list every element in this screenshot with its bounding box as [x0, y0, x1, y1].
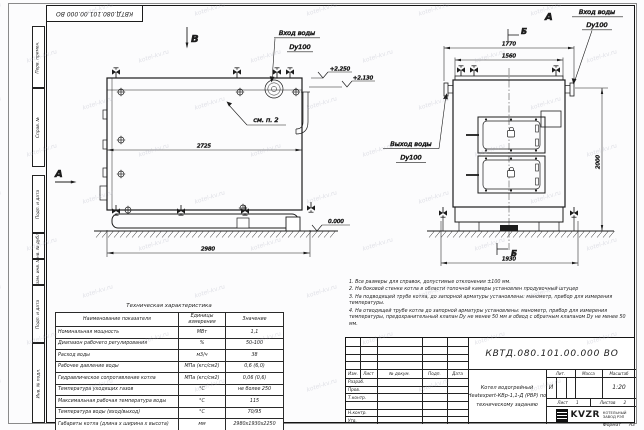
kvzr-logo-text: KVZR	[571, 410, 600, 420]
param-name: Диапазон рабочего регулирования	[56, 338, 179, 350]
table-row: Температура уходящих газов°Сне более 250	[56, 384, 284, 396]
name-line: Котел водогрейный	[481, 384, 534, 393]
table-row: Рабочее давление водыМПа (кгс/см2)0,6 (6…	[56, 361, 284, 373]
name-line: техническому заданию	[476, 401, 538, 410]
title-block: Изм. Лист № докум. Подп. Дата Разраб. Пр…	[345, 337, 635, 423]
upper-door	[466, 117, 545, 153]
param-unit: °С	[179, 407, 226, 419]
format-note: Формат А3	[575, 423, 635, 428]
elev-top-label: +2.250	[330, 67, 351, 73]
table-row: Максимальная рабочая температура воды°С1…	[56, 396, 284, 408]
param-unit: м3/ч	[179, 350, 226, 362]
inlet-right-dy: Dy100	[586, 21, 607, 29]
control-box	[541, 111, 561, 127]
mass-label: Масса	[575, 369, 602, 377]
row-razrab: Разраб.	[346, 378, 379, 386]
dim-2000: 2000	[596, 155, 602, 169]
document-name: Котел водогрейный Heatexpert-КВр-1,1-Д (…	[468, 369, 546, 424]
note-2: 2. На боковой стенке котла в области топ…	[349, 287, 631, 293]
sheets-cell: Листов 2	[590, 398, 636, 406]
lit-label: Лит.	[546, 369, 575, 377]
see-note-label: см. п. 2	[253, 116, 278, 124]
tech-table: Наименование показателя Единицы измерени…	[55, 312, 284, 430]
note-3: 3. На подводящей трубе котла, до запорно…	[349, 295, 631, 308]
row-tkontr: Т.контр.	[346, 393, 379, 401]
sheet-value: 1	[576, 400, 579, 405]
name-line: Heatexpert-КВр-1,1-Д (РВР) по	[468, 392, 546, 401]
lower-door	[466, 156, 545, 193]
section-b-bottom-label: Б	[511, 249, 517, 258]
col-ndoc: № докум.	[377, 369, 422, 378]
row-nkontr: Н.контр.	[346, 409, 379, 417]
param-value: 38	[226, 350, 284, 362]
inlet-left-dy: Dy100	[289, 43, 310, 51]
param-unit: °С	[179, 384, 226, 396]
elev-mid-label: +2.130	[353, 76, 374, 82]
view-a-label: А	[54, 169, 63, 180]
col-header: Наименование показателя	[56, 313, 179, 327]
table-header-row: Наименование показателя Единицы измерени…	[56, 313, 284, 327]
param-name: Номинальная мощность	[56, 327, 179, 339]
row-utv: Утв.	[346, 416, 379, 424]
param-unit: МПа (кгс/см2)	[179, 361, 226, 373]
grid-line	[566, 377, 567, 398]
note-1: 1. Все размеры для справок, допустимые о…	[349, 280, 631, 286]
param-unit: %	[179, 338, 226, 350]
caption-line: ЗАВОД РЭП	[603, 415, 627, 419]
grid-line	[422, 338, 423, 424]
row-prov: Пров.	[346, 386, 379, 394]
col-header: Единицы измерения	[179, 313, 226, 327]
param-unit: мм	[179, 419, 226, 430]
kvzr-caption: КОТЕЛЬНЫЙ ЗАВОД РЭП	[603, 411, 627, 420]
format-value: А3	[629, 423, 635, 428]
sheet-cell: Лист 1	[546, 398, 590, 406]
dim-1560: 1560	[502, 54, 516, 60]
inlet-left-label: Вход воды	[279, 29, 315, 37]
inlet-flange	[570, 83, 574, 96]
param-unit: °С	[179, 396, 226, 408]
param-value: 1,1	[226, 327, 284, 339]
note-4: 4. На отводящей трубе котла до запорной …	[349, 309, 631, 328]
company-logo: KVZR КОТЕЛЬНЫЙ ЗАВОД РЭП	[546, 406, 636, 424]
param-value: 50-100	[226, 338, 284, 350]
view-b-label: В	[191, 34, 199, 45]
param-value: не более 250	[226, 384, 284, 396]
format-label: Формат	[603, 423, 621, 428]
param-value: 70/95	[226, 407, 284, 419]
col-data: Дата	[447, 369, 468, 378]
dim-2980: 2980	[201, 247, 215, 253]
table-row: Температура воды (вход/выход)°С70/95	[56, 407, 284, 419]
grid-line	[346, 346, 468, 347]
param-name: Температура воды (вход/выход)	[56, 407, 179, 419]
drawing-sheet: КВТД.080.101.00.000 ВО Перв. примен. Спр…	[0, 0, 644, 430]
param-name: Гидравлическое сопротивление котла	[56, 373, 179, 385]
designation: КВТД.080.101.00.000 ВО	[468, 338, 636, 369]
inlet-right-label: Вход воды	[579, 8, 615, 16]
table-row: Расход водым3/ч38	[56, 350, 284, 362]
grid-line	[346, 361, 468, 362]
param-name: Максимальная рабочая температура воды	[56, 396, 179, 408]
param-name: Габариты котла (длина х ширина х высота)	[56, 419, 179, 430]
notes: 1. Все размеры для справок, допустимые о…	[349, 280, 631, 329]
param-value: 115	[226, 396, 284, 408]
scale-value: 1:20	[602, 377, 636, 398]
param-value: 0,06 (0,6)	[226, 373, 284, 385]
outlet-flange	[444, 83, 448, 96]
sheets-label: Листов	[600, 400, 616, 405]
sheet-label: Лист	[557, 400, 568, 405]
sheets-value: 2	[623, 400, 626, 405]
dim-1770: 1770	[502, 42, 516, 48]
param-name: Расход воды	[56, 350, 179, 362]
annotations: В А А Б Б см. п. 2 Вход воды Dy100 Вход …	[54, 8, 623, 258]
param-name: Температура уходящих газов	[56, 384, 179, 396]
param-value: 0,6 (6,0)	[226, 361, 284, 373]
grid-line	[346, 354, 468, 355]
grid-line	[346, 401, 468, 402]
table-row: Диапазон рабочего регулирования%50-100	[56, 338, 284, 350]
dim-2725: 2725	[197, 144, 211, 150]
param-value: 2980х1930х2250	[226, 419, 284, 430]
outlet-label: Выход воды	[390, 140, 431, 148]
kvzr-logo-icon	[556, 409, 568, 422]
grid-line	[447, 338, 448, 424]
table-row: Гидравлическое сопротивление котлаМПа (к…	[56, 373, 284, 385]
table-row: Номинальная мощностьМВт1,1	[56, 327, 284, 339]
param-unit: МПа (кгс/см2)	[179, 373, 226, 385]
col-header: Значение	[226, 313, 284, 327]
ground-lines	[94, 231, 615, 238]
tech-table-title: Техническая характеристика	[55, 303, 283, 309]
col-list: Лист	[360, 369, 377, 378]
col-podp: Подп.	[422, 369, 447, 378]
param-name: Рабочее давление воды	[56, 361, 179, 373]
col-izm: Изм.	[346, 369, 360, 378]
lit-value: И	[546, 377, 556, 398]
elev-ground-label: 0.000	[328, 219, 344, 225]
outlet-dy: Dy100	[400, 154, 421, 162]
section-b-top-label: Б	[521, 27, 527, 36]
table-row: Габариты котла (длина х ширина х высота)…	[56, 419, 284, 430]
right-view-boiler-front	[439, 66, 578, 252]
view-a-top-label: А	[544, 12, 553, 23]
param-unit: МВт	[179, 327, 226, 339]
scale-label: Масштаб	[602, 369, 636, 377]
